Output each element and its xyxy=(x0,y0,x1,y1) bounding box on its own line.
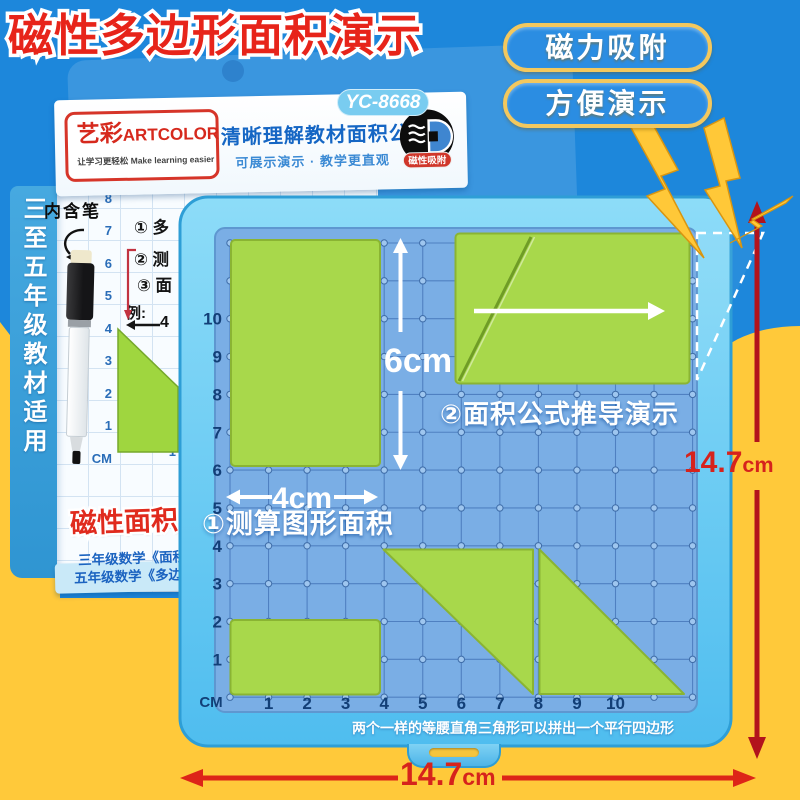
grid-node xyxy=(381,467,387,473)
grid-node xyxy=(420,505,426,511)
grid-node xyxy=(381,391,387,397)
feature-badge-magnetic: 磁力吸附 xyxy=(503,23,712,72)
grid-node xyxy=(342,580,348,586)
grid-node xyxy=(574,505,580,511)
grid-node xyxy=(227,580,233,586)
board-bottom-axis-label: 3 xyxy=(341,694,350,713)
lightning-bolt-small xyxy=(730,196,793,243)
pen-barrel xyxy=(66,327,90,438)
grid-node xyxy=(535,543,541,549)
grid-node xyxy=(612,580,618,586)
grid-node xyxy=(420,278,426,284)
grid-node xyxy=(265,467,271,473)
grid-node xyxy=(227,467,233,473)
grid-node xyxy=(265,580,271,586)
package-axis-label: 2 xyxy=(88,386,112,401)
grid-node xyxy=(420,467,426,473)
shape-rectangle-4x6[interactable] xyxy=(231,240,380,466)
board-left-axis-label: 10 xyxy=(203,310,222,329)
grid-node xyxy=(304,580,310,586)
grid-node xyxy=(342,467,348,473)
package-example-triangle xyxy=(118,329,178,452)
grid-node xyxy=(689,543,695,549)
grid-node xyxy=(420,543,426,549)
board-bottom-axis-label: 7 xyxy=(495,694,504,713)
package-axis-label: CM xyxy=(88,451,112,466)
board-left-axis-label: 2 xyxy=(213,613,222,632)
height-measure-arrowhead-up xyxy=(748,201,766,223)
grid-node xyxy=(458,656,464,662)
package-axis-label: 1 xyxy=(88,418,112,433)
grid-node xyxy=(535,505,541,511)
pen-tip xyxy=(72,451,80,464)
package-bottom-title: 磁性面积 磁性面积 xyxy=(69,502,178,542)
board-bottom-axis-label: 9 xyxy=(572,694,581,713)
board-left-axis-label: 9 xyxy=(213,348,222,367)
example-arrowhead xyxy=(126,320,135,330)
grid-node xyxy=(689,656,695,662)
board-bottom-axis-label: 4 xyxy=(379,694,389,713)
magnetic-board: 1098765432112345678910CM 6cm 4cm xyxy=(178,195,733,748)
grid-node xyxy=(651,580,657,586)
grid-node xyxy=(689,429,695,435)
grid-node xyxy=(420,391,426,397)
grid-node xyxy=(420,240,426,246)
board-width-measurement: 14.7cm xyxy=(400,756,496,793)
grid-node xyxy=(420,618,426,624)
pen-ring xyxy=(68,320,91,328)
board-left-axis-label: 6 xyxy=(213,461,222,480)
package-step-item: ③ 面 xyxy=(137,272,172,296)
board-bottom-axis-label: 8 xyxy=(534,694,543,713)
example-value: 4 xyxy=(160,314,169,332)
grid-node xyxy=(381,580,387,586)
grid-node xyxy=(651,467,657,473)
poster-title: 磁性多边形面积演示 磁性多边形面积演示 xyxy=(8,6,422,66)
grid-node xyxy=(420,429,426,435)
board-bottom-axis-label: 10 xyxy=(606,694,625,713)
grid-node xyxy=(651,618,657,624)
package-axis-label: 4 xyxy=(88,321,112,336)
example-bracket-line xyxy=(128,250,136,312)
grid-node xyxy=(227,543,233,549)
grid-node xyxy=(612,543,618,549)
grid-node xyxy=(304,543,310,549)
pen-taper xyxy=(70,437,83,452)
grid-node xyxy=(612,467,618,473)
grid-node xyxy=(304,467,310,473)
pen-cap-body xyxy=(66,263,94,321)
grid-node xyxy=(420,656,426,662)
board-height-measurement: 14.7cm xyxy=(684,446,774,480)
package-axis-label: 5 xyxy=(88,288,112,303)
grid-node xyxy=(574,467,580,473)
package-step-item: ② 测 xyxy=(134,246,169,270)
board-left-axis-label: 8 xyxy=(213,385,222,404)
package-grade-line-1: 三年级数学《面积 xyxy=(78,545,187,569)
board-left-axis-label: 1 xyxy=(213,650,222,669)
grid-node xyxy=(497,467,503,473)
grid-node xyxy=(689,505,695,511)
grid-node xyxy=(651,505,657,511)
board-bottom-axis-label: 5 xyxy=(418,694,427,713)
grid-node xyxy=(381,543,387,549)
grid-node xyxy=(381,618,387,624)
grid-node xyxy=(381,429,387,435)
background-yellow-left xyxy=(0,322,60,602)
board-left-axis-label: 3 xyxy=(213,575,222,594)
board-step2-label: ②面积公式推导演示 xyxy=(440,394,679,431)
grid-node xyxy=(265,543,271,549)
example-bracket-arrowhead xyxy=(124,310,132,320)
grid-node xyxy=(689,391,695,397)
grid-node xyxy=(342,543,348,549)
grid-node xyxy=(651,543,657,549)
grid-node xyxy=(574,543,580,549)
grid-node xyxy=(381,278,387,284)
grid-node xyxy=(689,618,695,624)
grid-node xyxy=(458,505,464,511)
board-unit-label: CM xyxy=(199,694,222,711)
board-bottom-axis-label: 1 xyxy=(264,694,273,713)
grid-node xyxy=(497,543,503,549)
feature-badge-demo: 方便演示 xyxy=(503,79,712,128)
grid-node xyxy=(458,543,464,549)
shape-rectangle-4x2[interactable] xyxy=(231,620,381,695)
package-axis-label: 1 xyxy=(152,444,176,459)
grid-node xyxy=(381,316,387,322)
package-grade-line-2: 五年级数学《多边 xyxy=(74,563,183,587)
pen-pointer-arrowhead xyxy=(66,251,78,262)
package-axis-label: 3 xyxy=(88,353,112,368)
example-label: 例: xyxy=(126,302,146,323)
grid-node xyxy=(689,580,695,586)
grid-node xyxy=(535,467,541,473)
grid-node xyxy=(458,467,464,473)
marker-pen xyxy=(61,250,97,469)
grid-node xyxy=(381,656,387,662)
board-bottom-axis-label: 6 xyxy=(457,694,466,713)
grid-node xyxy=(381,240,387,246)
grid-node xyxy=(420,316,426,322)
board-step1-label: ①测算图形面积 xyxy=(202,502,394,541)
product-poster: 三至五年级教材适用 987654321CM1① 多② 测③ 面例:4 内含笔 磁… xyxy=(0,0,800,800)
pen-cap-top xyxy=(70,250,91,265)
grid-node xyxy=(497,505,503,511)
grid-node xyxy=(612,505,618,511)
grid-node xyxy=(689,694,695,700)
height-label: 6cm xyxy=(384,342,452,380)
board-left-axis-label: 7 xyxy=(213,423,222,442)
board-bottom-axis-label: 2 xyxy=(302,694,311,713)
board-caption: 两个一样的等腰直角三角形可以拼出一个平行四边形 xyxy=(352,718,674,738)
package-axis-label: 6 xyxy=(88,256,112,271)
